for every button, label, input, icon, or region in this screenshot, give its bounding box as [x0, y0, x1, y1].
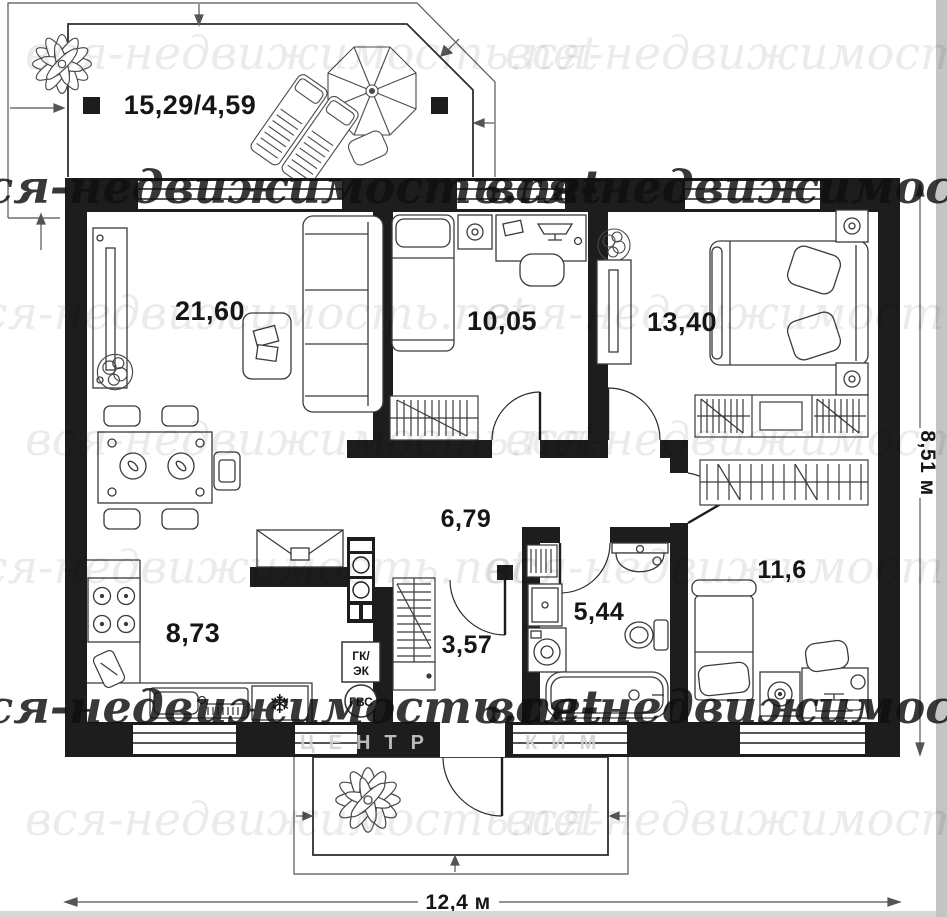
terrace-plant-icon	[33, 35, 92, 94]
porch-arrows	[296, 812, 626, 872]
towel-radiator-icon	[527, 545, 557, 577]
dimension-width-label: 12,4 м	[425, 891, 490, 914]
bed-master-icon	[710, 241, 868, 365]
room-label-hallway: 6,79	[441, 505, 492, 533]
room-label-kitchen: 8,73	[166, 618, 221, 648]
dimension-height-label: 8,51 м	[916, 430, 939, 495]
floor-plan-svg: ❄ ГК/ ЭК ГВС	[0, 0, 947, 917]
washing-machine-icon	[528, 628, 566, 672]
kitchen-hood-icon	[257, 530, 343, 567]
room-label-bedroom-master: 13,40	[647, 307, 717, 337]
fridge-snowflake-icon: ❄	[269, 689, 291, 719]
stove-icon	[88, 578, 140, 642]
coffee-table-icon	[243, 313, 291, 379]
room-labels: 15,29/4,59 21,60 10,05 13,40 6,79 8,73 3…	[124, 90, 807, 659]
wardrobe-bed-small	[390, 396, 478, 440]
room-label-corridor: 3,57	[442, 631, 493, 659]
room-label-bedroom-small: 10,05	[467, 306, 537, 336]
wardrobe-master	[695, 395, 868, 437]
gk-label: ГК/	[352, 649, 370, 663]
room-label-living: 21,60	[175, 296, 245, 326]
toilet-icon	[625, 620, 668, 650]
floor-plan-page: ❄ ГК/ ЭК ГВС	[0, 0, 947, 917]
nightstand-small-icon	[458, 215, 492, 249]
fridge-icon: ❄	[252, 686, 308, 720]
bed-third-icon	[692, 580, 756, 700]
bed-small-icon	[392, 215, 454, 351]
tv-unit-living	[93, 228, 127, 388]
dining-table-icon	[98, 406, 240, 529]
gvs-label: ГВС	[349, 695, 373, 709]
wardrobe-third	[700, 460, 868, 505]
sofa-icon	[303, 216, 383, 412]
room-label-terrace: 15,29/4,59	[124, 90, 257, 120]
shower-basin-icon	[528, 584, 562, 626]
gvs-badge: ГВС	[345, 685, 377, 717]
desk-third-icon	[802, 639, 868, 718]
porch-plant-icon	[336, 768, 400, 832]
kitchen-sink-icon	[150, 688, 248, 718]
room-label-bathroom: 5,44	[574, 598, 625, 626]
gk-ek-box: ГК/ ЭК	[342, 642, 380, 682]
speaker-icon	[760, 672, 800, 716]
desk-small-icon	[496, 215, 586, 286]
wardrobe-corridor	[393, 578, 435, 690]
room-label-bedroom-third: 11,6	[757, 556, 806, 584]
ek-label: ЭК	[353, 664, 370, 678]
tv-unit-master	[597, 260, 631, 364]
bath-sink-icon	[612, 543, 668, 572]
bathtub-icon	[546, 672, 668, 718]
